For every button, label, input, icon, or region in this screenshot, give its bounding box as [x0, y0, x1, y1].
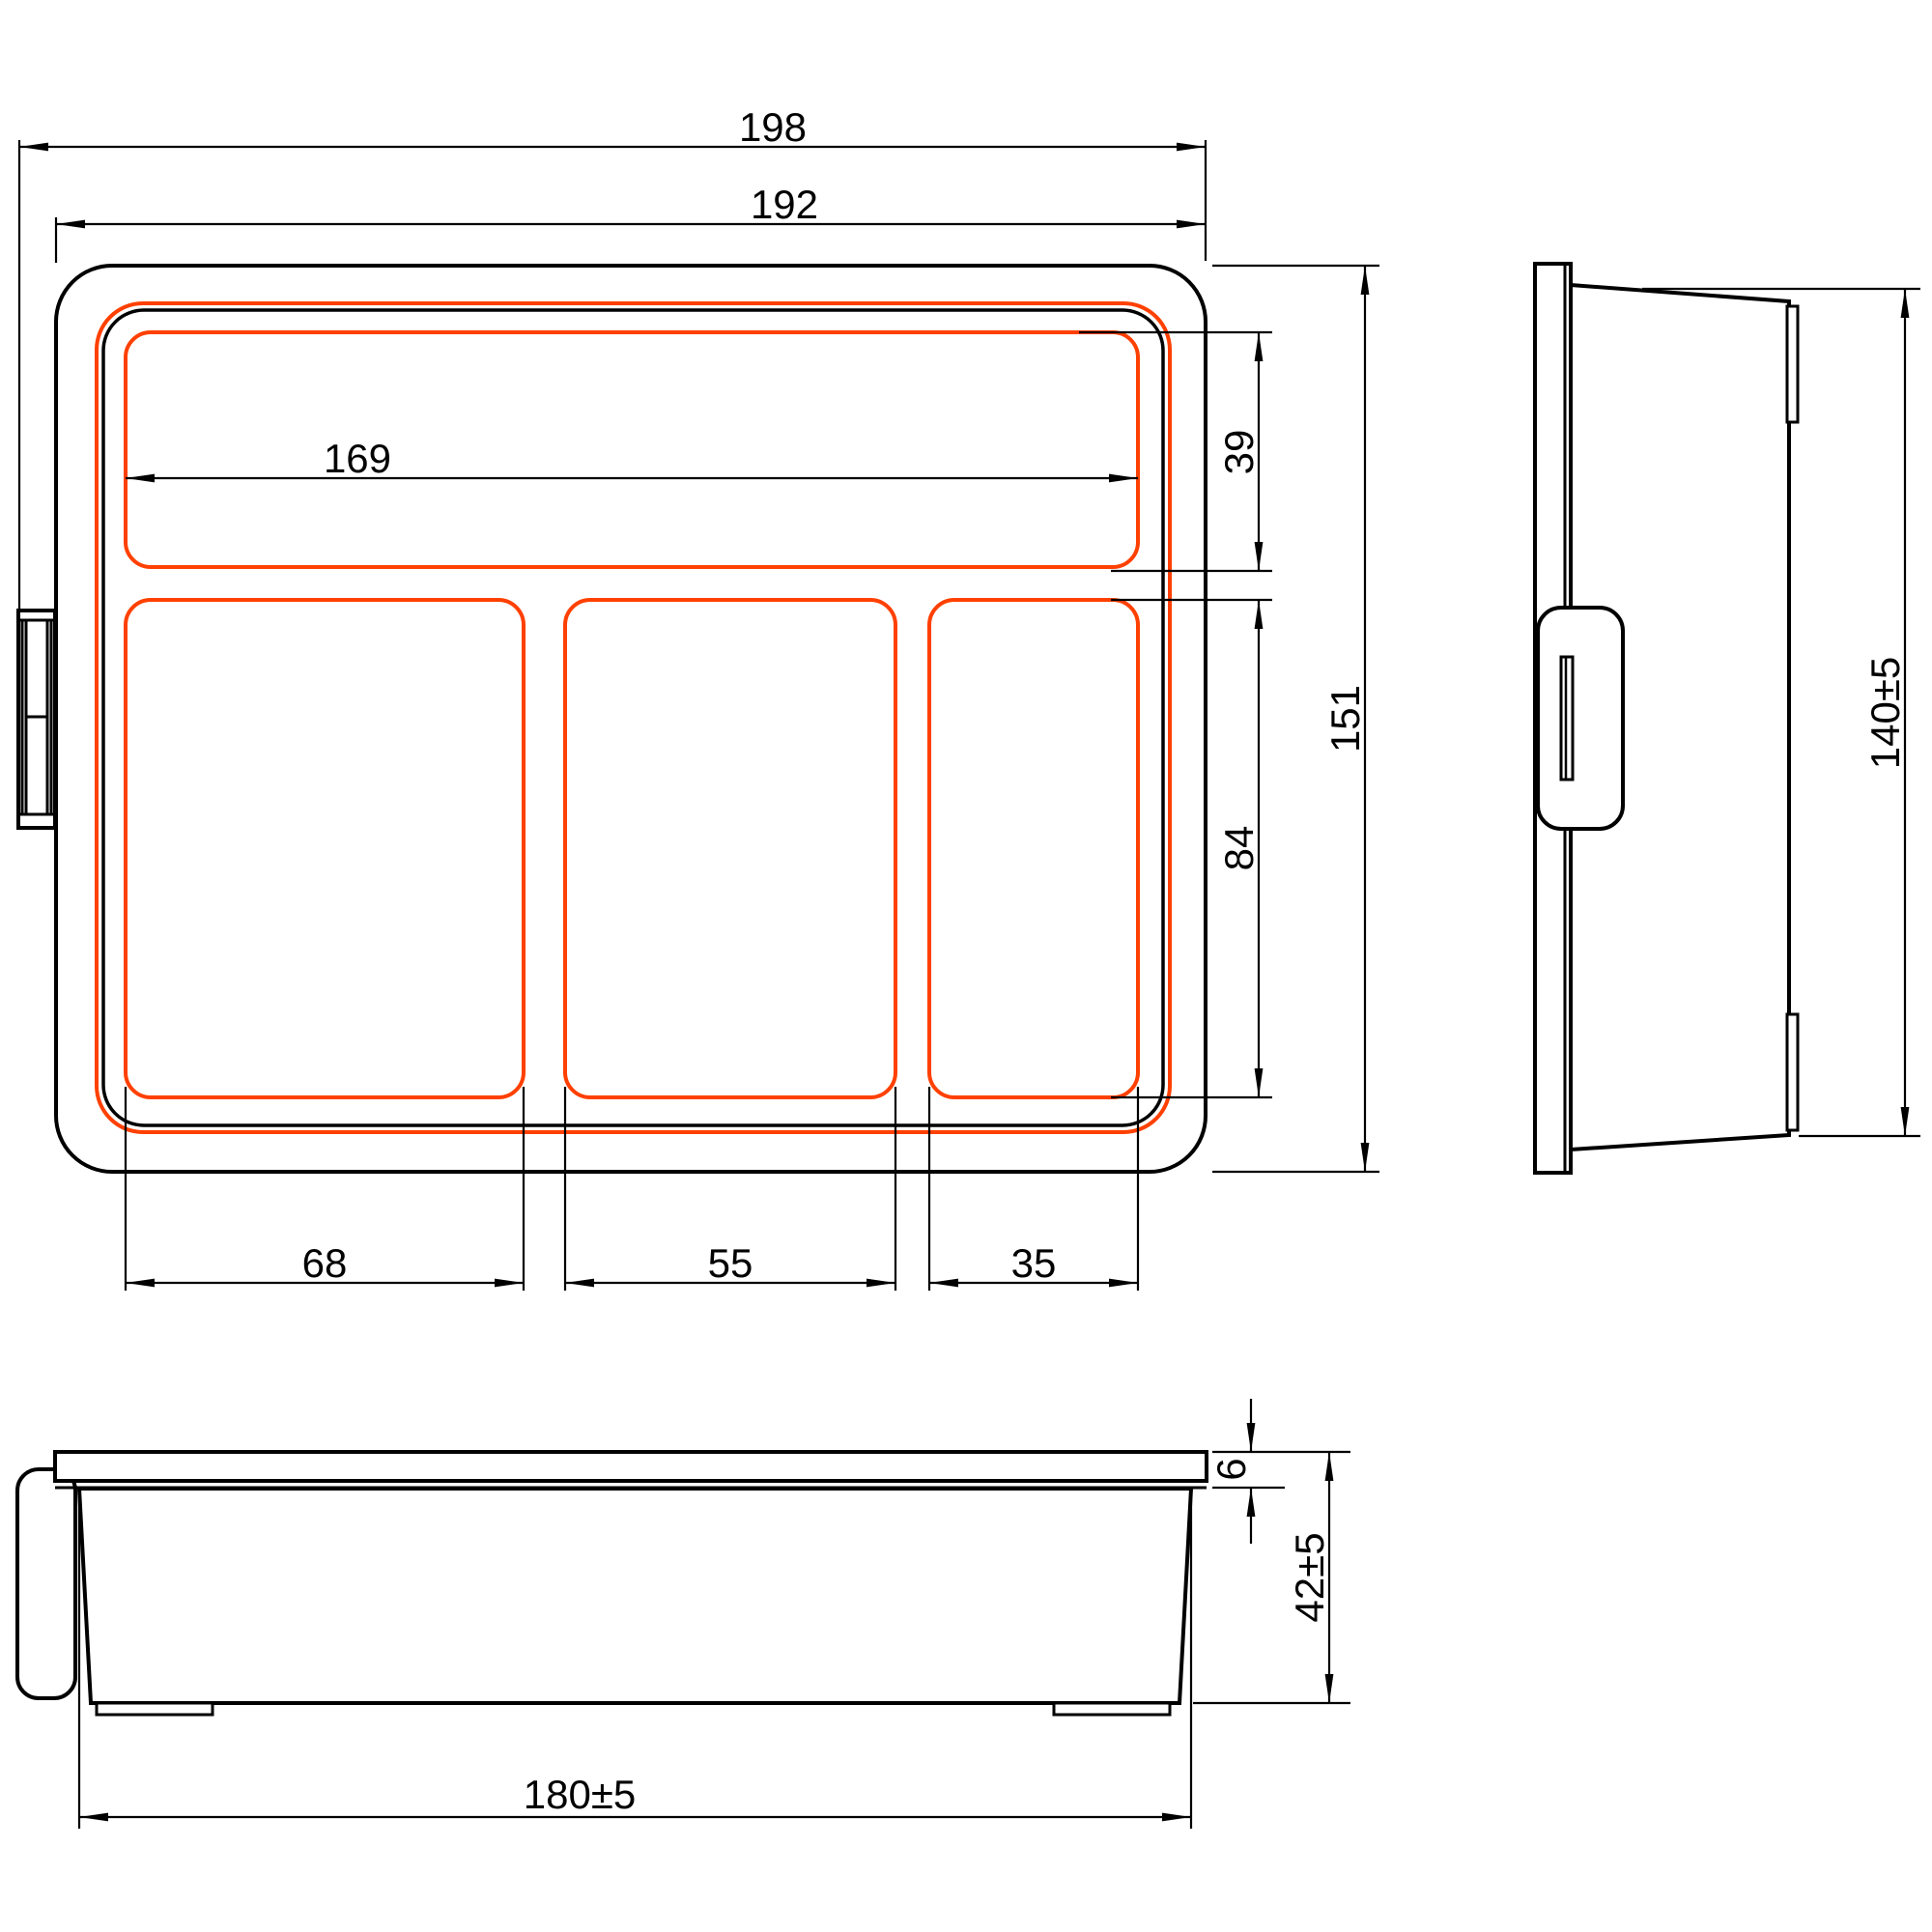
dim-39-label: 39	[1216, 430, 1262, 475]
dim-35-label: 35	[1011, 1240, 1057, 1286]
dim-140-label: 140±5	[1862, 657, 1908, 769]
dim-198-label: 198	[739, 104, 807, 150]
dim-68-label: 68	[302, 1240, 348, 1286]
dim-151-label: 151	[1322, 685, 1368, 753]
dim-42-label: 42±5	[1287, 1532, 1332, 1622]
front-tray-body	[79, 1489, 1191, 1703]
front-foot-left	[97, 1703, 213, 1715]
side-foot-top	[1787, 306, 1798, 422]
top-view-outer-outline	[56, 266, 1206, 1172]
dim-55-label: 55	[708, 1240, 753, 1286]
dim-180-label: 180±5	[524, 1772, 636, 1817]
dim-192	[56, 217, 1206, 263]
front-view: 6 42±5 180±5	[17, 1399, 1350, 1829]
top-view: 198 192 169 39 84	[18, 104, 1379, 1291]
front-lid-plate	[55, 1452, 1207, 1481]
side-foot-bottom	[1787, 1014, 1798, 1130]
dim-6-label: 6	[1208, 1458, 1254, 1480]
front-latch	[17, 1469, 75, 1698]
dim-84-label: 84	[1216, 826, 1262, 871]
dim-192-label: 192	[751, 182, 818, 227]
side-latch	[1538, 608, 1623, 829]
side-view: 140±5	[1535, 264, 1920, 1173]
dim-169-label: 169	[324, 436, 391, 481]
latch-top-view	[18, 611, 55, 828]
drawing-page: 198 192 169 39 84	[0, 0, 1932, 1932]
technical-drawing: 198 192 169 39 84	[0, 0, 1932, 1932]
front-foot-right	[1054, 1703, 1170, 1715]
